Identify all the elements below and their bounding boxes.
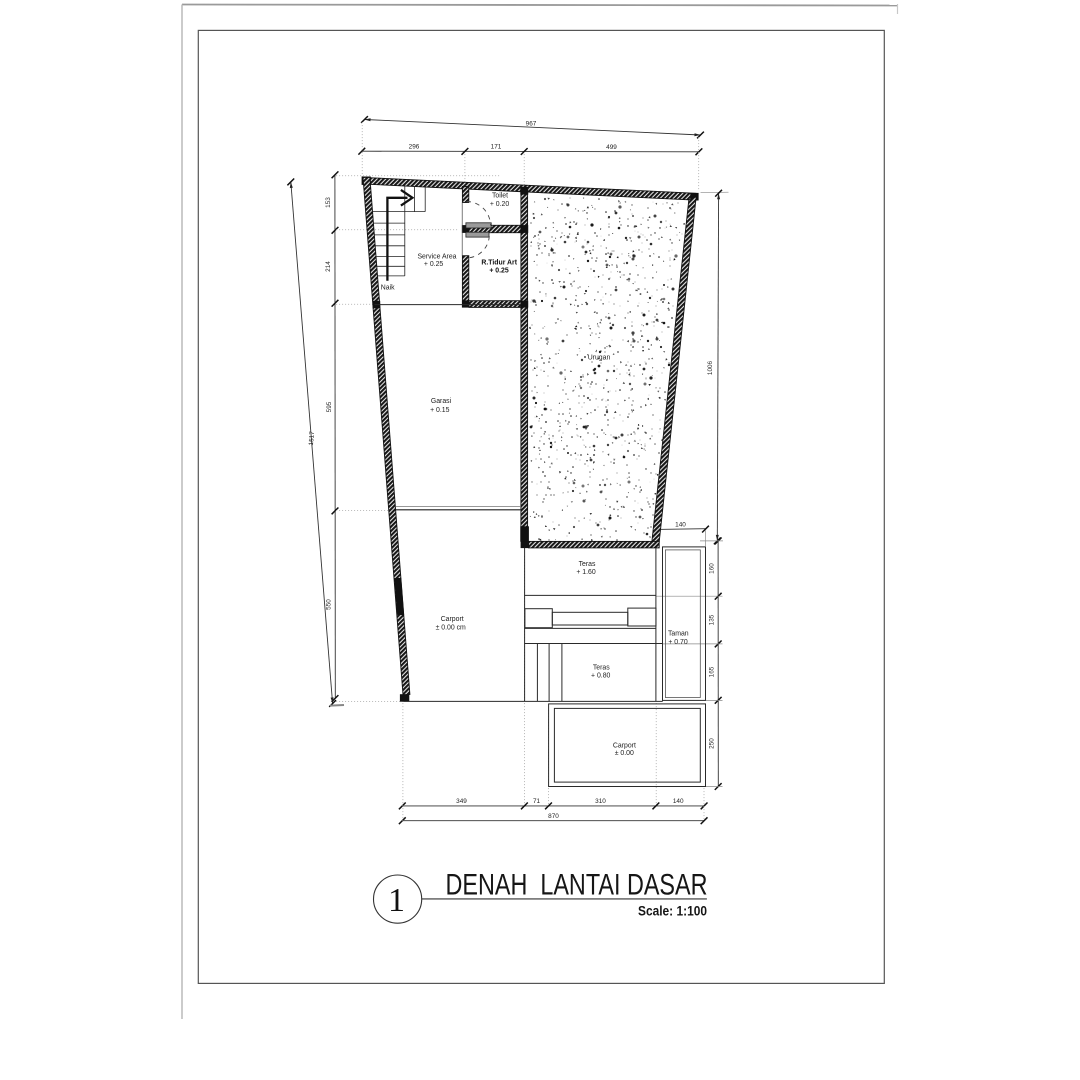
svg-text:R.Tidur Art: R.Tidur Art: [481, 259, 517, 266]
svg-text:Naik: Naik: [381, 285, 395, 292]
svg-text:135: 135: [709, 614, 716, 625]
svg-text:160: 160: [709, 563, 716, 574]
svg-text:DENAH LANTAI DASAR: DENAH LANTAI DASAR: [446, 868, 708, 901]
svg-text:Teras: Teras: [579, 561, 596, 568]
svg-text:296: 296: [409, 144, 420, 151]
svg-text:870: 870: [548, 813, 559, 820]
svg-text:310: 310: [595, 798, 606, 805]
svg-text:165: 165: [709, 666, 716, 677]
svg-text:Teras: Teras: [593, 665, 610, 672]
svg-text:Scale: 1:100: Scale: 1:100: [638, 904, 707, 919]
svg-text:140: 140: [673, 798, 684, 805]
svg-text:Toilet: Toilet: [492, 192, 508, 199]
svg-text:349: 349: [456, 798, 467, 805]
svg-text:Service Area: Service Area: [417, 253, 456, 260]
svg-text:± 0.00: ± 0.00: [615, 750, 634, 757]
svg-text:140: 140: [675, 521, 686, 528]
svg-text:Carport: Carport: [613, 742, 636, 749]
svg-text:967: 967: [526, 121, 537, 128]
svg-text:+ 0.70: + 0.70: [668, 639, 688, 646]
svg-text:171: 171: [491, 144, 502, 151]
svg-text:1517: 1517: [308, 431, 316, 446]
svg-text:214: 214: [325, 261, 332, 272]
svg-text:+ 0.25: + 0.25: [424, 261, 444, 268]
svg-text:71: 71: [533, 798, 541, 805]
svg-text:+ 0.80: + 0.80: [591, 673, 611, 680]
svg-text:± 0.00 cm: ± 0.00 cm: [436, 625, 466, 632]
svg-text:+ 0.20: + 0.20: [490, 201, 510, 208]
svg-text:Taman: Taman: [668, 631, 689, 638]
svg-text:250: 250: [709, 738, 716, 749]
svg-text:+ 1.60: + 1.60: [576, 569, 596, 576]
svg-text:499: 499: [606, 144, 617, 151]
svg-text:+ 0.15: + 0.15: [430, 407, 450, 414]
svg-text:Garasi: Garasi: [431, 398, 452, 405]
svg-text:1: 1: [388, 882, 405, 919]
svg-text:595: 595: [326, 401, 333, 412]
svg-text:Carport: Carport: [441, 616, 464, 623]
svg-text:153: 153: [325, 197, 332, 208]
svg-text:+ 0.25: + 0.25: [489, 267, 509, 274]
svg-text:Urugan: Urugan: [588, 355, 611, 362]
svg-text:550: 550: [325, 599, 332, 610]
svg-text:1006: 1006: [707, 360, 714, 375]
